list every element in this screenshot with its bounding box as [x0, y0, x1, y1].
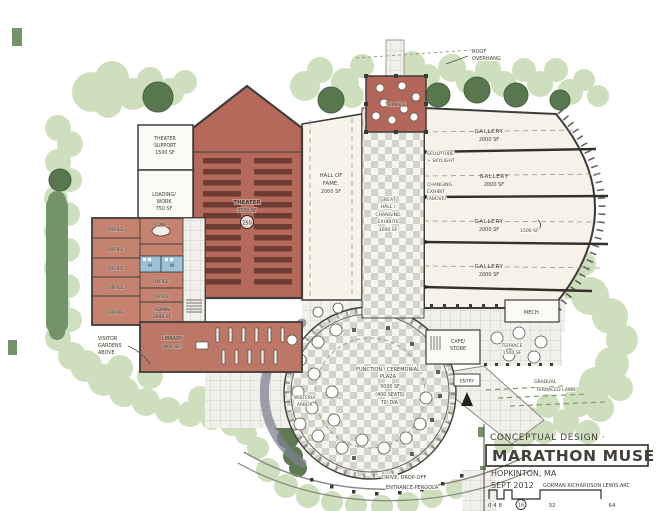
hall-of-fame — [302, 114, 362, 300]
scale-tick-0: 0 4 8 — [488, 503, 502, 509]
admin-label: ADMIN — [154, 307, 169, 313]
great-hall-label3: CHANGING — [375, 212, 401, 218]
hall-of-fame-area: 2000 SF — [321, 189, 341, 195]
roof-note2: OVERHANG — [472, 56, 501, 62]
gallery-2-label: GALLERY — [479, 174, 508, 180]
hall-of-fame-label2: FAME, — [323, 181, 339, 187]
theater-support-label2: SUPPORT — [154, 143, 176, 149]
changing-note2: EXHIBIT — [427, 189, 445, 195]
library-desk — [196, 342, 208, 349]
library-area: (800 SF) — [162, 344, 182, 350]
scale-tick-32: 32 — [549, 503, 556, 509]
gallery-alt-area: 1500 SF — [520, 228, 539, 234]
great-hall-label: GREAT — [380, 197, 395, 203]
plaza-dia: 70' DIA. — [381, 400, 400, 406]
loading-area: 750 SF — [156, 206, 173, 212]
gallery-3-area: 2000 SF — [479, 227, 499, 233]
plaza-area: 5000 SF — [380, 384, 400, 390]
cafe-label: CAFE/ — [451, 339, 465, 345]
office-label-5: OFFICE — [108, 310, 124, 316]
sculpture-note2: + SKYLIGHT — [427, 158, 455, 164]
great-hall-area: 3000 SF — [379, 227, 398, 233]
project-date: SEPT 2012 — [491, 481, 534, 490]
hall-of-fame-label: HALL OF — [320, 173, 343, 179]
project-location: HOPKINTON, MA — [491, 469, 557, 478]
roof-terrace-label: TERRACE — [385, 102, 406, 107]
scale-tick-64: 64 — [609, 503, 616, 509]
sculpture-note: SCULPTURE — [427, 151, 454, 157]
hedge-west — [46, 191, 68, 340]
plaza-seats: (400 SEATS) — [375, 392, 405, 398]
loading-label2: WORK — [157, 199, 173, 205]
office-label-7: OFFICE — [153, 294, 169, 300]
visitor-note: VISITOR — [98, 336, 118, 342]
gallery-4-area: 2000 SF — [479, 272, 499, 278]
office-label-6: OFFICE — [153, 279, 169, 285]
theater-support-label: THEATER — [153, 136, 176, 142]
visitor-note2: GARDENS — [98, 343, 122, 349]
changing-note3: (ABOVE) — [427, 196, 447, 202]
plaza-label: FUNCTION / CEREMONIAL — [356, 367, 420, 373]
office-label-4: OFFICE — [108, 285, 124, 291]
library-label: LIBRARY — [162, 336, 184, 342]
visitor-note3: ABOVE — [98, 350, 115, 356]
gallery-1-label: GALLERY — [474, 129, 503, 135]
pergola-note: ENTRANCE PERGOLA — [386, 485, 439, 491]
gallery-4-label: GALLERY — [474, 264, 503, 270]
cafe-label2: STORE — [450, 346, 466, 352]
theater-seats: 250 — [242, 221, 252, 227]
conference-label: CONF. — [154, 222, 167, 228]
terrace-se-label: TERRACE — [500, 343, 522, 349]
architect-name: GORMAN RICHARDSON LEWIS ARC — [543, 483, 631, 489]
office-label-2: OFFICE — [108, 247, 124, 253]
roof-note: ROOF — [472, 49, 486, 55]
restroom-women-label: W — [170, 263, 175, 269]
scale-tick-16: 16 — [518, 503, 524, 509]
great-hall-label4: EXHIBITS — [377, 219, 398, 225]
restroom-men-label: M — [148, 263, 152, 269]
office-label-3: OFFICE — [108, 266, 124, 272]
plaza-label2: PLAZA — [380, 374, 397, 380]
restrooms — [140, 256, 183, 272]
drive-note: DRIVE, DROP-OFF — [382, 475, 426, 481]
gallery-3-label: GALLERY — [474, 219, 503, 225]
mech-label: MECH. — [524, 310, 541, 316]
changing-note: CHANGING — [427, 182, 453, 188]
admin-area: 2000 SF — [153, 314, 172, 320]
gallery-2-area: 2000 SF — [484, 182, 504, 188]
sketch-page: THEATER SUPPORT 1500 SF LOADING/ WORK 75… — [0, 0, 656, 511]
terrace-se-area: 1500 SF — [503, 350, 522, 356]
theater — [193, 86, 302, 298]
theater-support-area: 1500 SF — [155, 150, 175, 156]
entry-label: ENTRY — [460, 379, 475, 385]
project-name: MARATHON MUSEUM — [492, 447, 656, 465]
library-table — [287, 335, 297, 345]
office-label-1: OFFICE — [108, 227, 124, 233]
lawn-note2: TERRACED LAWN — [535, 387, 576, 393]
great-hall-label2: HALL / — [381, 204, 396, 210]
loading-label: LOADING/ — [152, 192, 176, 198]
wisteria-note: WISTERIA — [294, 395, 315, 401]
title-note: CONCEPTUAL DESIGN · — [490, 433, 605, 443]
theater-area: 3500 SF — [237, 208, 257, 214]
gallery-1-area: 2000 SF — [479, 137, 499, 143]
north-walkway — [386, 40, 404, 78]
lawn-note: GRADUAL — [534, 379, 557, 385]
wisteria-note2: ARBOR — [297, 402, 313, 408]
theater-label: THEATER — [233, 200, 261, 206]
site-plan-drawing: THEATER SUPPORT 1500 SF LOADING/ WORK 75… — [0, 0, 656, 511]
